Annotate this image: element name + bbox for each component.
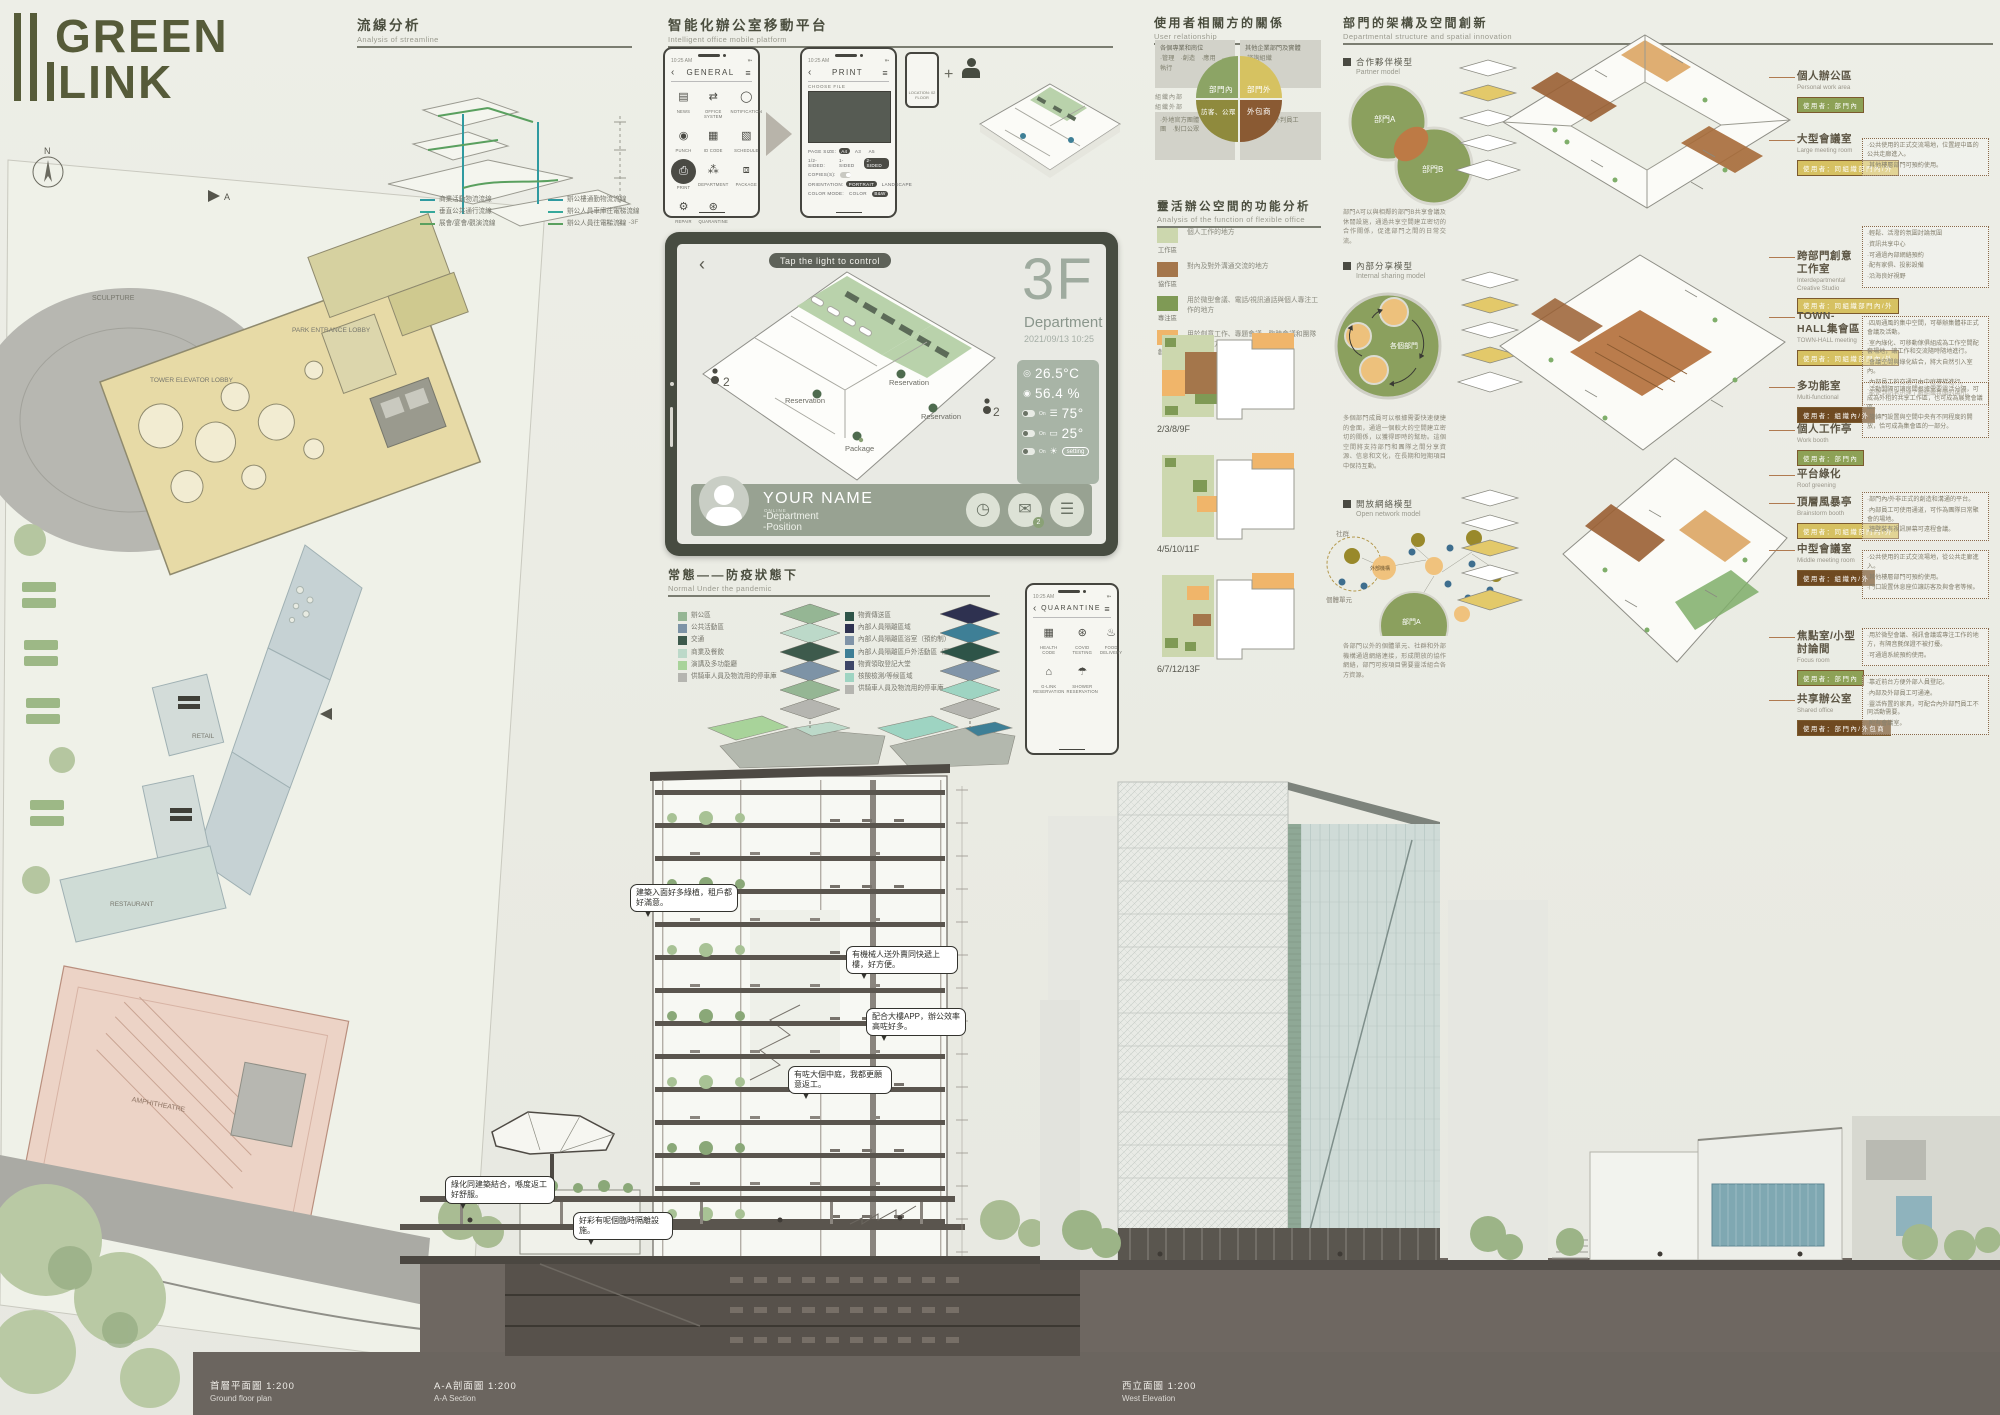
- panel-subtitle: Analysis of the function of flexible off…: [1157, 215, 1321, 224]
- room-title-zh: 多功能室: [1797, 380, 1861, 393]
- app-label: PRINT: [671, 185, 696, 190]
- app-item[interactable]: ⇄OFFICE SYSTEM: [698, 86, 728, 119]
- room-title-zh: 共享辦公室: [1797, 693, 1861, 706]
- network-label-community: 社群: [1336, 529, 1350, 538]
- room-title-en: Large meeting room: [1797, 147, 1861, 154]
- app-item[interactable]: ◉PUNCH: [671, 125, 696, 153]
- status-icons: ▾▪: [748, 58, 752, 64]
- room-title-en: Work booth: [1797, 437, 1861, 444]
- panel-title: 使用者相關方的關係: [1154, 14, 1319, 31]
- panel-title: 流線分析: [357, 14, 632, 34]
- app-label: NEWS: [671, 109, 696, 114]
- app-item[interactable]: ⧈PACKAGE: [730, 159, 762, 190]
- partner-model-desc: 部門A可以與相鄰的部門B共享會議及休閒設施，通過共享空間建立密切的合作關係，促進…: [1343, 208, 1446, 246]
- room-title-zh: 焦點室/小型討論間: [1797, 630, 1861, 656]
- app-icon[interactable]: ⧈: [735, 159, 757, 181]
- room-notes: ·部門內/外非正式的創造和溝通的平台。·內部員工可使用通道，可作為團隊日常聚會的…: [1862, 492, 1989, 541]
- flow-line-label: 展會/宴會/觀演流線: [439, 220, 495, 229]
- menu-icon[interactable]: ≡: [882, 68, 889, 78]
- quadrant-label: 訪客、公眾: [1201, 106, 1236, 116]
- room-title-en: Interdepartmental Creative Studio: [1797, 277, 1861, 292]
- logo-bar: [30, 13, 37, 101]
- app-item[interactable]: ⌂G-LINK RESERVATION: [1033, 661, 1065, 694]
- panel-subtitle: Analysis of streamline: [357, 35, 632, 44]
- room-title-en: Personal work area: [1797, 84, 1861, 91]
- logo-bar: [47, 62, 54, 101]
- room-label: 共享辦公室Shared office使用者：部門內/外包商: [1797, 693, 1861, 736]
- room-label: 大型會議室Large meeting room使用者：同組織部門內/外: [1797, 133, 1861, 176]
- back-icon[interactable]: ‹: [671, 67, 676, 78]
- app-item[interactable]: ◯NOTIFICATION: [730, 86, 762, 119]
- room-user-chip: 使用者：部門內: [1797, 97, 1864, 113]
- location-readout: LOCATION: 02 FLOOR: [907, 90, 937, 100]
- streamline-legend-b: 辦公樓通勤物流流線辦公人員車庫往電梯流線辦公人員往電梯流線: [548, 196, 640, 231]
- axon-floorplan-1: [1495, 30, 1795, 225]
- panel-platform: 智能化辦公室移動平台 Intelligent office mobile pla…: [668, 14, 1113, 48]
- room-title-zh: 個人辦公區: [1797, 70, 1861, 83]
- app-icon[interactable]: ⚙: [673, 196, 695, 218]
- flow-line-label: 商業活動物流流線: [439, 196, 492, 205]
- app-item[interactable]: ☂SHOWER RESERVATION: [1067, 661, 1099, 694]
- room-title-en: Multi-functional: [1797, 394, 1861, 401]
- sharing-model-diagram: 各個部門: [1328, 288, 1453, 408]
- plan-label-reservation[interactable]: Reservation: [889, 378, 929, 387]
- streamline-legend-a: 商業活動物流流線垂直公共通行流線展會/宴會/觀演流線: [420, 196, 495, 231]
- mini-phone-icon: LOCATION: 02 FLOOR: [905, 52, 939, 108]
- room-label: 中型會議室Middle meeting room使用者：組織內/外: [1797, 543, 1861, 586]
- print-row-label: ORIENTATION:: [808, 182, 844, 187]
- app-icon[interactable]: ▤: [673, 86, 695, 108]
- caption-section: A-A剖面圖 1:200A-A Section: [434, 1378, 517, 1403]
- room-label: TOWN-HALL集會區TOWN-HALL meeting使用者：同組織部門內/…: [1797, 310, 1861, 366]
- app-label: FOOD DELIVERY: [1100, 645, 1122, 655]
- temperature-value: 26.5°C: [1035, 366, 1079, 381]
- app-icon[interactable]: ◯: [735, 86, 757, 108]
- option-bw[interactable]: B&W: [872, 191, 888, 197]
- app-label: NOTIFICATION: [730, 109, 762, 114]
- screen-title: GENERAL: [687, 68, 735, 77]
- svg-text:A: A: [224, 192, 230, 202]
- zone-swatch: [678, 636, 687, 645]
- app-label: G-LINK RESERVATION: [1033, 684, 1065, 694]
- back-icon[interactable]: ‹: [1033, 603, 1038, 614]
- function-swatch: [1157, 228, 1178, 243]
- arrow-right-icon: [766, 112, 792, 156]
- room-notes: ·靠近前台方便外部人員登記。·內部及外部員工可通達。·靈活佈置的家具，可配合內外…: [1862, 675, 1989, 735]
- occupancy-right: 2: [993, 405, 1000, 419]
- app-icon[interactable]: ⌂: [1038, 661, 1060, 683]
- screen-title: QUARANTINE: [1041, 605, 1101, 612]
- room-title-zh: 頂層風暴亭: [1797, 496, 1861, 509]
- zone-swatch: [678, 612, 687, 621]
- model-legend-sharing: 內部分享模型Internal sharing model: [1343, 260, 1425, 280]
- function-name: 工作區: [1157, 245, 1178, 254]
- room-user-chip: 使用者：部門內: [1797, 670, 1864, 686]
- heater-toggle[interactable]: [1022, 430, 1035, 437]
- venn-label-b: 部門B: [1422, 164, 1443, 174]
- user-bar: YOUR NAME ONLINE -Department -Position ◷…: [691, 484, 1092, 536]
- function-name: 專注區: [1157, 313, 1178, 322]
- status-time: 10:25 AM: [671, 58, 692, 64]
- stack-diagram-3: [1452, 486, 1527, 616]
- avatar: [699, 476, 749, 526]
- app-item[interactable]: ♨FOOD DELIVERY: [1100, 622, 1122, 655]
- function-desc: 用於微型會議、電話/視訊通話與個人專注工作的地方: [1187, 296, 1319, 322]
- floor-range-label: 4/5/10/11F: [1157, 544, 1199, 554]
- floor-readout: 3F: [1022, 246, 1094, 313]
- app-icon[interactable]: ▦: [702, 125, 724, 147]
- outer-org-label: 組織外部: [1155, 102, 1183, 111]
- app-item[interactable]: ▦ID CODE: [698, 125, 728, 153]
- svg-text:N: N: [44, 146, 51, 156]
- caption-elevation: 西立面圖 1:200West Elevation: [1122, 1378, 1196, 1403]
- phone-general: 10:25 AM▾▪ ‹GENERAL≡ ▤NEWS⇄OFFICE SYSTEM…: [663, 47, 760, 218]
- room-title-zh: 中型會議室: [1797, 543, 1861, 556]
- app-label: QUARANTINE: [698, 219, 728, 224]
- app-label: SHOWER RESERVATION: [1067, 684, 1099, 694]
- app-label: SCHEDULE: [730, 148, 762, 153]
- panel-subtitle: Intelligent office mobile platform: [668, 35, 1113, 44]
- app-label: REPAIR: [671, 219, 696, 224]
- room-title-en: Shared office: [1797, 707, 1861, 714]
- tablet-camera-icon: [670, 382, 674, 386]
- back-icon[interactable]: ‹: [808, 67, 813, 78]
- panel-streamline: 流線分析 Analysis of streamline: [357, 14, 632, 48]
- flow-line-swatch: [548, 223, 563, 225]
- phone-quarantine: 10:25 AM▾▪ ‹QUARANTINE≡ ▦HEALTH CODE⊛COV…: [1025, 583, 1119, 755]
- app-label: OFFICE SYSTEM: [698, 109, 728, 119]
- environment-card: ◎26.5°C ◉56.4 % On☰75° On▭25° On☀setting: [1017, 360, 1099, 484]
- department-readout: Department: [1024, 314, 1102, 331]
- thermometer-icon: ◎: [1022, 368, 1032, 379]
- menu-icon[interactable]: ≡: [745, 68, 752, 78]
- presentation-board: GREEN LINK SCULPTURE N: [0, 0, 2000, 1415]
- plan-label-package[interactable]: Package: [845, 444, 874, 453]
- function-name: 協作區: [1157, 279, 1178, 288]
- app-item[interactable]: ▧SCHEDULE: [730, 125, 762, 153]
- app-icon[interactable]: ◉: [673, 125, 695, 147]
- plan-label-reservation[interactable]: Reservation: [785, 396, 825, 405]
- app-grid: ▤NEWS⇄OFFICE SYSTEM◯NOTIFICATION◉PUNCH▦I…: [671, 86, 752, 224]
- screen-title: PRINT: [832, 68, 863, 77]
- tablet-floorplan-drawing[interactable]: 2 2: [695, 268, 1005, 486]
- print-row-label: COLOR MODE:: [808, 191, 844, 196]
- flow-line-swatch: [420, 199, 435, 201]
- annotation-bubble: 配合大樓APP，辦公效率高咗好多。: [866, 1008, 966, 1036]
- annotation-bubble: 有咗大個中庭，我都更願意返工。: [788, 1066, 892, 1094]
- panel-subtitle: Normal Under the pandemic: [668, 584, 990, 593]
- floor-range-label: 6/7/12/13F: [1157, 664, 1200, 674]
- room-title-zh: 平台綠化: [1797, 468, 1861, 481]
- quadrant-chart: [1194, 54, 1284, 144]
- function-desc: 對內及對外溝通交流的地方: [1187, 262, 1319, 288]
- blinds-icon: ☰: [1049, 408, 1059, 419]
- section-drawing: [400, 750, 1090, 1365]
- elevation-drawing: [1040, 760, 2000, 1360]
- flow-line-label: 辦公人員往電梯流線: [567, 220, 626, 229]
- option-portrait[interactable]: PORTRAIT: [846, 181, 877, 187]
- flow-line-swatch: [420, 211, 435, 213]
- humidity-value: 56.4 %: [1035, 386, 1080, 401]
- sharing-center-label: 各個部門: [1390, 341, 1418, 350]
- function-swatch: [1157, 296, 1178, 311]
- sharing-model-desc: 多個部門成員可以根據需要快速便捷的會面，通過一個較大的空間建立密切的關係，以獲得…: [1343, 414, 1446, 472]
- plan-label-reservation[interactable]: Reservation: [921, 412, 961, 421]
- app-label: DEPARTMENT: [698, 182, 728, 187]
- app-label: ID CODE: [698, 148, 728, 153]
- panel-title: 常態——防疫狀態下: [668, 566, 990, 583]
- option-a5[interactable]: A5: [866, 148, 877, 154]
- room-label: 平台綠化Roof greening: [1797, 468, 1861, 493]
- room-notes: ·輕鬆、活潑的氛圍討論氛圍·資訊共享中心·可通過內部網絡預約·配有家俱、投影設備…: [1862, 226, 1989, 288]
- axon-floorplan-3: [1555, 450, 1795, 670]
- app-label: HEALTH CODE: [1033, 645, 1065, 655]
- zone-swatch: [678, 649, 687, 658]
- light-icon: ☀: [1049, 446, 1059, 457]
- tablet-button[interactable]: [670, 407, 673, 447]
- room-label: 焦點室/小型討論間Focus room使用者：部門內: [1797, 630, 1861, 686]
- venn-label-a: 部門A: [1374, 114, 1396, 124]
- app-label: PACKAGE: [730, 182, 762, 187]
- room-title-en: Roof greening: [1797, 482, 1861, 489]
- zone-swatch: [678, 661, 687, 670]
- function-swatch: [1157, 262, 1178, 277]
- status-icons: ▾▪: [885, 58, 889, 64]
- flow-line-swatch: [420, 223, 435, 225]
- network-label-external: 外部機構: [1370, 565, 1390, 572]
- option-color[interactable]: COLOR: [846, 191, 869, 197]
- tap-to-control-hint: Tap the light to control: [769, 253, 891, 268]
- app-item[interactable]: ▤NEWS: [671, 86, 696, 119]
- site-label-retail: RETAIL: [192, 733, 215, 740]
- function-desc: 個人工作的地方: [1187, 228, 1319, 254]
- flow-line-swatch: [548, 199, 563, 201]
- room-label: 個人工作亭Work booth使用者：部門內: [1797, 423, 1861, 466]
- option-a3[interactable]: A3: [852, 148, 863, 154]
- light-toggle[interactable]: [1022, 448, 1035, 455]
- panel-title: 靈活辦公空間的功能分析: [1157, 198, 1321, 214]
- zone-swatch: [678, 624, 687, 633]
- logo-text-green: GREEN: [55, 13, 229, 59]
- copies-toggle[interactable]: [840, 172, 851, 178]
- room-notes: ·公共使用的正式交流場地，位置經中區的公共走廊進入。·其他樓層部門可預約使用。: [1862, 138, 1989, 176]
- tablet-mockup: ‹ Tap the light to control: [665, 232, 1118, 556]
- phone-print: 10:25 AM▾▪ ‹PRINT≡ CHOOSE FILE PAGE SIZE…: [800, 47, 897, 218]
- network-model-desc: 各部門以外的個體單元、社群和外部機構通過網絡連接，形成開放的協作網絡，部門可按項…: [1343, 642, 1446, 680]
- panel-title: 智能化辦公室移動平台: [668, 14, 1113, 34]
- stakeholder-head: 其他企業部門及實體: [1245, 44, 1316, 53]
- site-label-lobby: TOWER ELEVATOR LOBBY: [150, 377, 234, 384]
- app-icon[interactable]: ▧: [735, 125, 757, 147]
- annotation-bubble: 有機械人送外賣同快遞上樓，好方便。: [846, 946, 958, 974]
- heater-value: 25°: [1062, 426, 1084, 441]
- zone-swatch: [678, 673, 687, 682]
- room-title-en: Brainstorm booth: [1797, 510, 1861, 517]
- site-label-restaurant: RESTAURANT: [110, 901, 154, 908]
- iso-office-thumbnail: [975, 78, 1125, 213]
- room-title-zh: 跨部門創意工作室: [1797, 250, 1861, 276]
- option-1sided[interactable]: 1-SIDED: [836, 158, 861, 169]
- blinds-value: 75°: [1062, 406, 1084, 421]
- room-title-en: Middle meeting room: [1797, 557, 1861, 564]
- user-relation-diagram: 各個專業和崗位 ·管理 ·創造 ·應用 ·執行 其他企業部門及實體 ·諮詢組織 …: [1155, 40, 1321, 160]
- status-icons: ▾▪: [1107, 594, 1111, 600]
- app-label: PUNCH: [671, 148, 696, 153]
- app-icon[interactable]: ⎙: [671, 159, 696, 184]
- chat-badge: 2: [1033, 517, 1044, 528]
- annotation-bubble: 建築入面好多綠植，租戶都好滿意。: [630, 884, 738, 912]
- room-title-zh: 大型會議室: [1797, 133, 1861, 146]
- app-icon[interactable]: ⁂: [702, 159, 724, 181]
- print-row-label: COPIES(S):: [808, 172, 836, 177]
- floor-diagram-2: [1157, 450, 1322, 542]
- flow-line-label: 辦公人員車庫往電梯流線: [567, 208, 640, 217]
- blinds-toggle[interactable]: [1022, 410, 1035, 417]
- app-item[interactable]: ▦HEALTH CODE: [1033, 622, 1065, 655]
- site-label-sculpture: SCULPTURE: [92, 295, 135, 302]
- user-department: -Department: [763, 511, 819, 522]
- app-grid: ▦HEALTH CODE⊛COVID TESTING♨FOOD DELIVERY…: [1033, 622, 1111, 694]
- app-icon[interactable]: ☂: [1071, 661, 1093, 683]
- app-icon[interactable]: ▦: [1038, 622, 1060, 644]
- chat-button[interactable]: ✉2: [1008, 493, 1042, 527]
- status-time: 10:25 AM: [1033, 594, 1054, 600]
- flow-line-label: 辦公樓通勤物流流線: [567, 196, 626, 205]
- inner-org-label: 組織內部: [1155, 92, 1183, 101]
- quadrant-label: 外包商: [1247, 106, 1271, 117]
- room-notes: ·活動間隔可讓房間根據需要靈活分隔，可成為外租的共享工作區，也可成為展覽會議區。…: [1862, 382, 1989, 438]
- print-row-label: PAGE SIZE:: [808, 149, 836, 154]
- option-2sided[interactable]: 2-SIDED: [864, 158, 889, 169]
- room-title-en: TOWN-HALL meeting: [1797, 337, 1861, 344]
- flow-line-swatch: [548, 211, 563, 213]
- quadrant-label: 部門外: [1247, 84, 1271, 95]
- room-title-zh: 個人工作亭: [1797, 423, 1861, 436]
- print-row-label: 1/2-SIDED:: [808, 158, 834, 168]
- print-preview: [808, 91, 891, 143]
- panel-flexible: 靈活辦公空間的功能分析 Analysis of the function of …: [1157, 198, 1321, 228]
- flow-line-label: 垂直公共通行流線: [439, 208, 492, 217]
- pandemic-axon-diagrams: [700, 596, 1020, 776]
- model-legend-network: 開放網絡模型Open network model: [1343, 498, 1421, 518]
- room-label: 多功能室Multi-functional使用者：組織內/外: [1797, 380, 1861, 423]
- plus-icon: +: [944, 66, 953, 84]
- app-item[interactable]: ⚙REPAIR: [671, 196, 696, 224]
- app-item[interactable]: ⊛QUARANTINE: [698, 196, 728, 224]
- user-position: -Position: [763, 522, 802, 533]
- menu-button[interactable]: ☰: [1050, 493, 1084, 527]
- caption-ground-plan: 首層平面圖 1:200Ground floor plan: [210, 1378, 295, 1403]
- room-user-chip: 使用者：部門內: [1797, 450, 1864, 466]
- datetime-readout: 2021/09/13 10:25: [1024, 334, 1094, 344]
- network-label-unit: 個體單元: [1326, 595, 1353, 604]
- user-name: YOUR NAME: [763, 490, 873, 508]
- app-item[interactable]: ⊛COVID TESTING: [1067, 622, 1099, 655]
- annotation-bubble: 好彩有呢個臨時隔離設施。: [573, 1212, 673, 1240]
- floor-diagram-1: [1157, 330, 1322, 422]
- clock-button[interactable]: ◷: [966, 493, 1000, 527]
- logo-bar: [14, 13, 21, 101]
- app-icon[interactable]: ⊛: [702, 196, 724, 218]
- option-landscape[interactable]: LANDSCAPE: [879, 181, 915, 187]
- choose-file-label: CHOOSE FILE: [808, 84, 889, 89]
- app-label: COVID TESTING: [1067, 645, 1099, 655]
- quadrant-label: 部門內: [1209, 84, 1233, 95]
- room-notes: ·用於微型會議、視訊會議或專注工作的地方，有隔音氈保證不被打擾。·可通過系統預約…: [1862, 628, 1989, 666]
- stakeholder-head: 各個專業和崗位: [1160, 44, 1230, 53]
- app-icon[interactable]: ⇄: [702, 86, 724, 108]
- occupancy-left: 2: [723, 375, 730, 389]
- model-legend-partner: 合作夥伴模型Partner model: [1343, 56, 1413, 76]
- app-item[interactable]: ⁂DEPARTMENT: [698, 159, 728, 190]
- person-icon: [960, 58, 982, 80]
- room-title-zh: TOWN-HALL集會區: [1797, 310, 1861, 336]
- app-icon[interactable]: ⊛: [1071, 622, 1093, 644]
- floor-range-label: 2/3/8/9F: [1157, 424, 1190, 434]
- option-a4[interactable]: A4: [839, 148, 850, 154]
- room-label-column: 個人辦公區Personal work area使用者：部門內大型會議室Large…: [1797, 30, 2000, 760]
- logo-text-link: LINK: [58, 59, 173, 105]
- setting-button[interactable]: setting: [1062, 447, 1090, 456]
- annotation-bubble: 綠化同建築結合，喺度返工好舒服。: [445, 1176, 555, 1204]
- humidity-icon: ◉: [1022, 388, 1032, 399]
- room-label: 跨部門創意工作室Interdepartmental Creative Studi…: [1797, 250, 1861, 314]
- menu-icon[interactable]: ≡: [1104, 604, 1111, 614]
- status-time: 10:25 AM: [808, 58, 829, 64]
- heater-icon: ▭: [1049, 428, 1059, 439]
- app-item[interactable]: ⎙PRINT: [671, 159, 696, 190]
- panel-pandemic: 常態——防疫狀態下 Normal Under the pandemic: [668, 566, 990, 597]
- axon-floorplan-2: [1495, 250, 1790, 455]
- room-label: 個人辦公區Personal work area使用者：部門內: [1797, 70, 1861, 113]
- tablet-screen: ‹ Tap the light to control: [677, 244, 1106, 544]
- panel-title: 部門的架構及空間創新: [1343, 14, 1993, 31]
- network-label-dept: 部門A: [1402, 617, 1421, 626]
- floor-diagram-3: [1157, 570, 1322, 662]
- room-title-en: Focus room: [1797, 657, 1861, 664]
- app-icon[interactable]: ♨: [1100, 622, 1122, 644]
- site-label-park-lobby: PARK ENTRANCE LOBBY: [292, 327, 371, 334]
- room-notes: ·公共使用的正式交流場地，從公共走廊進入。·其他樓層部門可預約使用。·門口設置休…: [1862, 550, 1989, 599]
- room-label: 頂層風暴亭Brainstorm booth使用者：同組織部門內/外: [1797, 496, 1861, 539]
